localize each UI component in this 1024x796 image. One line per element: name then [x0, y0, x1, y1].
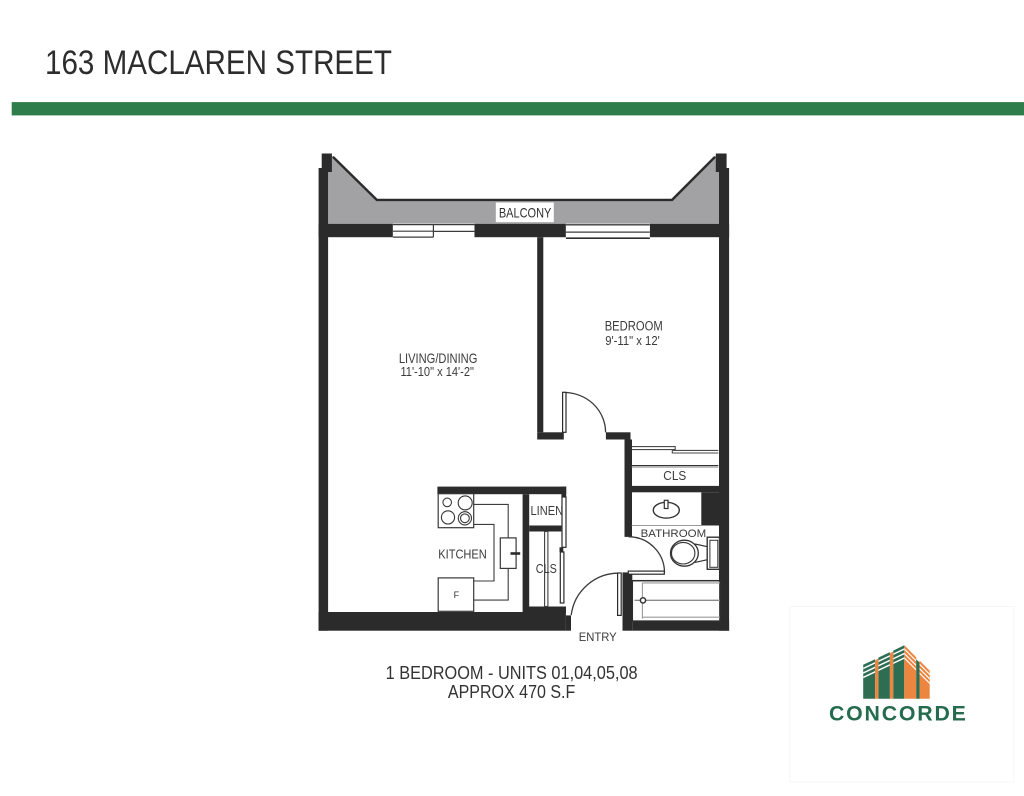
svg-text:BATHROOM: BATHROOM [641, 528, 707, 540]
svg-text:1 BEDROOM - UNITS 01,04,05,08: 1 BEDROOM - UNITS 01,04,05,08 [386, 663, 638, 683]
svg-text:ENTRY: ENTRY [579, 630, 617, 644]
svg-text:CLS: CLS [663, 469, 686, 483]
svg-text:CONCORDE: CONCORDE [829, 702, 968, 726]
svg-text:CLS: CLS [536, 562, 557, 576]
svg-text:BALCONY: BALCONY [499, 205, 552, 221]
svg-text:11'-10" x 14'-2": 11'-10" x 14'-2" [400, 364, 474, 379]
svg-text:APPROX 470 S.F: APPROX 470 S.F [448, 682, 575, 702]
svg-text:KITCHEN: KITCHEN [438, 546, 487, 561]
svg-text:LINEN: LINEN [531, 504, 564, 518]
svg-text:9'-11" x 12': 9'-11" x 12' [605, 333, 660, 348]
svg-text:BEDROOM: BEDROOM [605, 319, 663, 334]
svg-text:163 MACLAREN STREET: 163 MACLAREN STREET [45, 44, 392, 82]
svg-text:F: F [454, 590, 460, 600]
